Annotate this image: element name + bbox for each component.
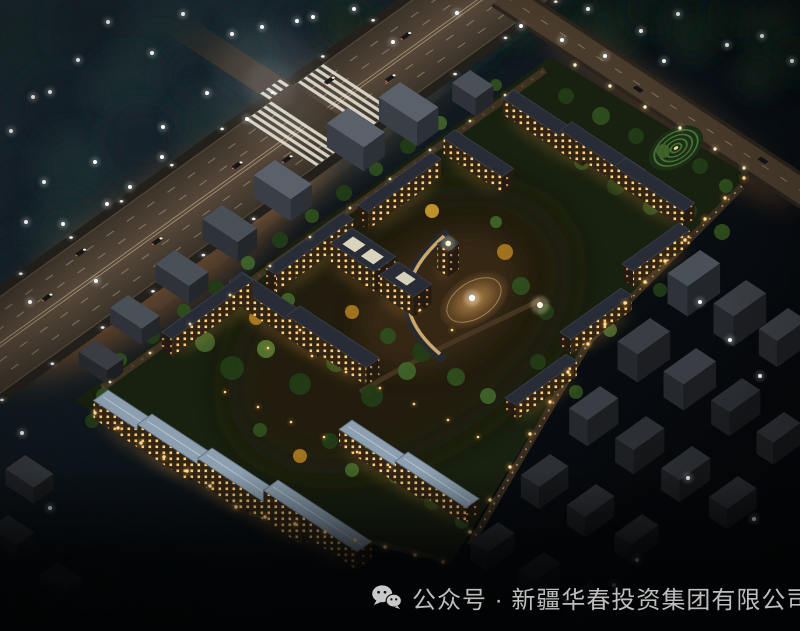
wechat-icon [371, 583, 403, 611]
aerial-night-rendering [0, 0, 800, 631]
caption-bar: 公众号 · 新疆华春投资集团有限公司 [371, 580, 800, 614]
caption-text: 公众号 · 新疆华春投资集团有限公司 [412, 580, 800, 615]
rendering-image: 公众号 · 新疆华春投资集团有限公司 [0, 0, 800, 631]
